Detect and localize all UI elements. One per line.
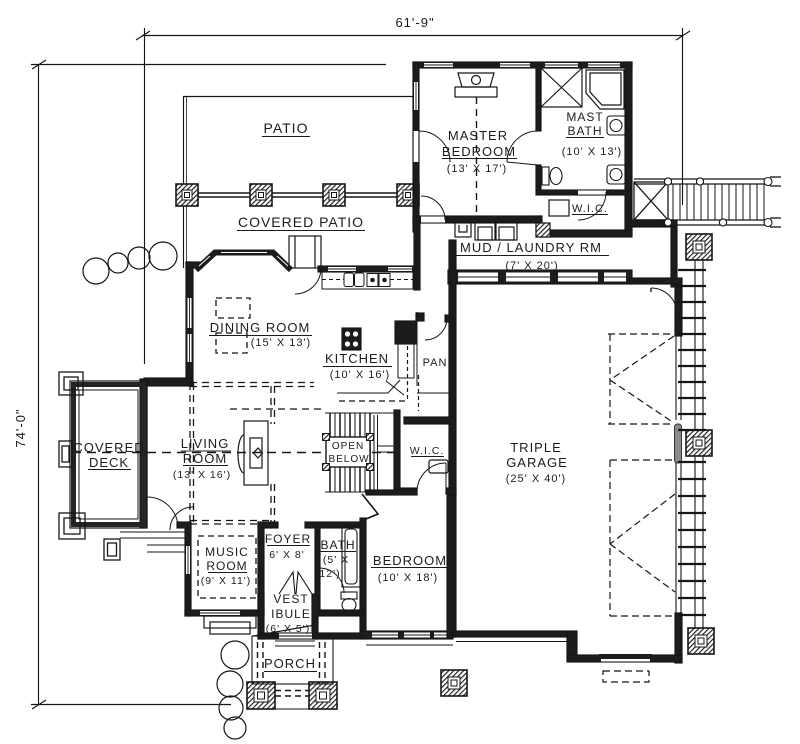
- svg-text:BEDROOM: BEDROOM: [373, 553, 447, 568]
- svg-text:W.I.C.: W.I.C.: [410, 445, 445, 457]
- svg-text:TRIPLE: TRIPLE: [510, 440, 562, 455]
- svg-text:(25' X 40'): (25' X 40'): [506, 473, 566, 485]
- svg-text:COVERED PATIO: COVERED PATIO: [238, 214, 364, 230]
- svg-text:(10' X 16'): (10' X 16'): [330, 369, 390, 381]
- svg-text:DINING ROOM: DINING ROOM: [210, 320, 311, 335]
- svg-text:MASTER: MASTER: [448, 128, 508, 143]
- svg-text:BATH: BATH: [320, 538, 355, 552]
- svg-text:6' X 8': 6' X 8': [269, 549, 305, 561]
- svg-text:(15' X 13'): (15' X 13'): [251, 337, 311, 349]
- svg-text:FOYER: FOYER: [265, 532, 311, 546]
- svg-text:(13' X 16'): (13' X 16'): [173, 469, 231, 481]
- svg-text:(13' X 17'): (13' X 17'): [447, 163, 507, 175]
- svg-text:ROOM: ROOM: [206, 559, 247, 573]
- svg-text:IBULE: IBULE: [271, 607, 311, 621]
- svg-text:BELOW: BELOW: [328, 454, 369, 465]
- svg-text:PATIO: PATIO: [264, 120, 309, 136]
- svg-text:BATH: BATH: [567, 124, 602, 138]
- svg-text:VEST: VEST: [273, 592, 308, 606]
- svg-text:OPEN: OPEN: [332, 441, 364, 452]
- svg-text:GARAGE: GARAGE: [506, 455, 568, 470]
- svg-text:MAST: MAST: [566, 110, 603, 124]
- svg-text:61'-9": 61'-9": [395, 15, 434, 30]
- svg-text:LIVING: LIVING: [181, 436, 230, 451]
- svg-text:MUSIC: MUSIC: [205, 545, 249, 559]
- svg-text:KITCHEN: KITCHEN: [325, 351, 389, 366]
- svg-text:(6' X 5'): (6' X 5'): [266, 623, 311, 635]
- svg-text:12'): 12'): [319, 568, 340, 580]
- svg-text:(9' X 11'): (9' X 11'): [201, 575, 252, 587]
- svg-text:PAN: PAN: [423, 357, 448, 369]
- svg-text:COVERED: COVERED: [73, 440, 144, 455]
- svg-text:W.I.C.: W.I.C.: [572, 203, 608, 215]
- svg-text:MUD / LAUNDRY RM: MUD / LAUNDRY RM: [460, 240, 602, 255]
- svg-text:(7' X 20'): (7' X 20'): [505, 260, 558, 272]
- svg-text:(10' X 13'): (10' X 13'): [562, 146, 622, 158]
- svg-text:DECK: DECK: [89, 455, 129, 470]
- svg-text:BEDROOM: BEDROOM: [442, 144, 516, 159]
- svg-text:PORCH: PORCH: [264, 656, 316, 671]
- svg-text:(5' X: (5' X: [323, 554, 349, 566]
- svg-text:74'-0": 74'-0": [13, 408, 28, 447]
- svg-text:(10' X 18'): (10' X 18'): [378, 572, 438, 584]
- svg-text:ROOM: ROOM: [183, 451, 227, 466]
